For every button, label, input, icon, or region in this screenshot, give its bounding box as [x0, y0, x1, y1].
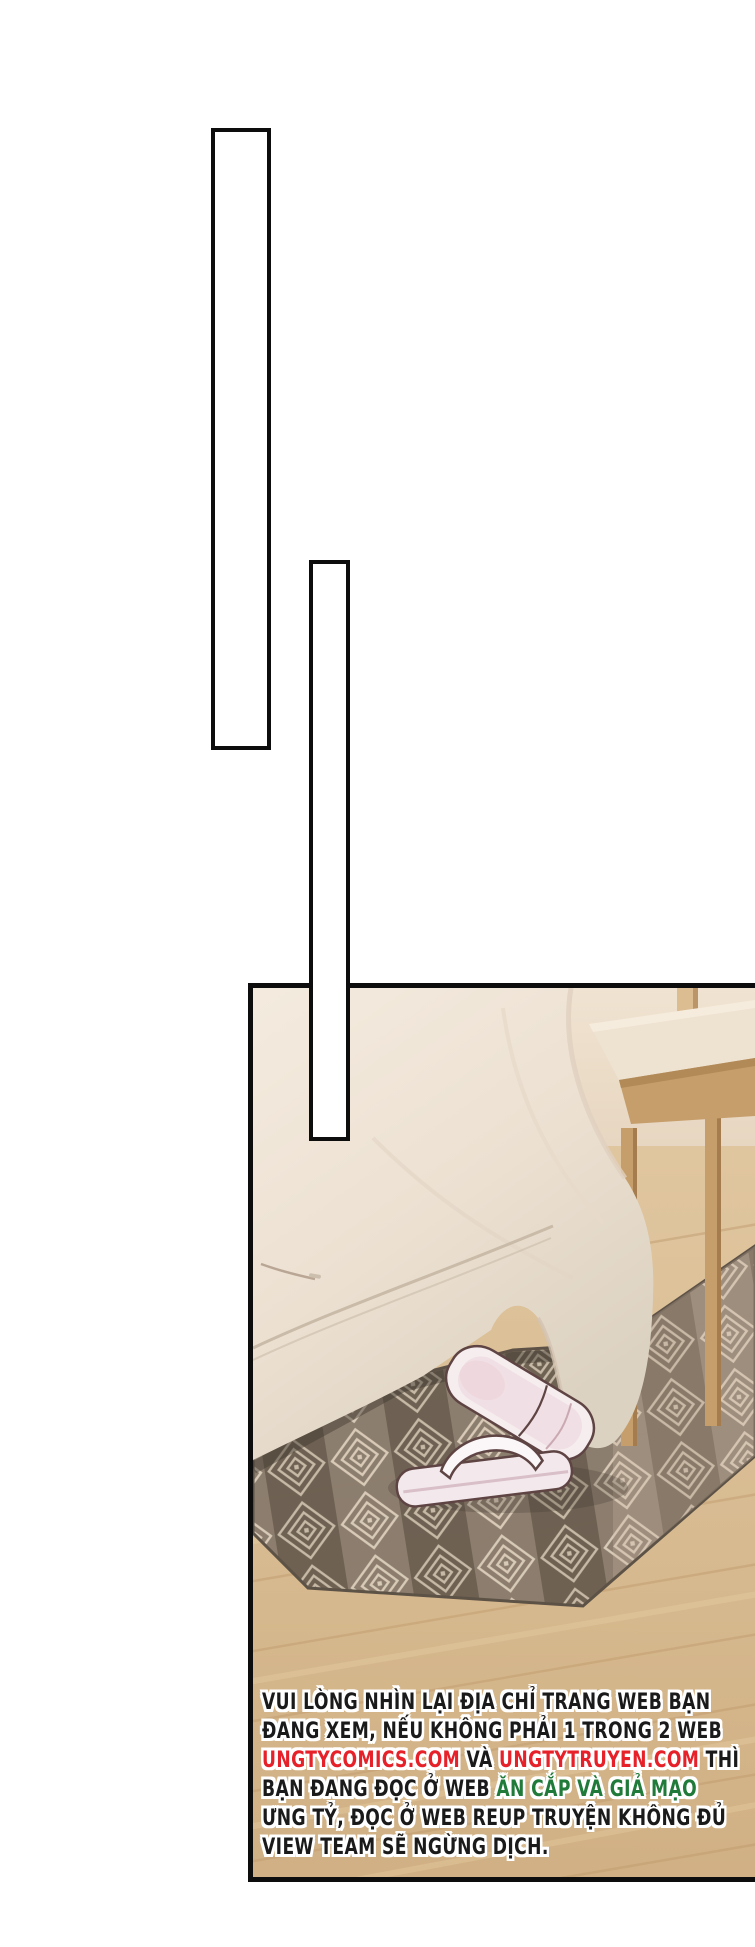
warning-text: VÀ — [460, 1748, 499, 1773]
piracy-warning: VUI LÒNG NHÌN LẠI ĐỊA CHỈ TRANG WEB BẠN … — [262, 1688, 755, 1862]
speech-bubble-tail-2 — [309, 560, 350, 1141]
warning-line-6: VIEW TEAM SẼ NGỪNG DỊCH. — [262, 1833, 739, 1862]
warning-text: ĐANG XEM, NẾU KHÔNG PHẢI 1 TRONG 2 WEB — [262, 1719, 722, 1744]
warning-line-2: ĐANG XEM, NẾU KHÔNG PHẢI 1 TRONG 2 WEB — [262, 1717, 739, 1746]
warning-text: ƯNG TỶ, ĐỌC Ở WEB REUP TRUYỆN KHÔNG ĐỦ — [262, 1806, 726, 1831]
speech-bubble-tail-1 — [211, 128, 271, 750]
warning-highlight: ĂN CẮP VÀ GIẢ MẠO — [496, 1777, 697, 1802]
official-site-link-2: UNGTYTRUYEN.COM — [499, 1748, 699, 1773]
comic-page: VUI LÒNG NHÌN LẠI ĐỊA CHỈ TRANG WEB BẠN … — [0, 0, 755, 1947]
warning-line-1: VUI LÒNG NHÌN LẠI ĐỊA CHỈ TRANG WEB BẠN — [262, 1688, 739, 1717]
warning-text: THÌ — [699, 1748, 739, 1773]
warning-line-4: BẠN ĐANG ĐỌC Ở WEB ĂN CẮP VÀ GIẢ MẠO — [262, 1775, 739, 1804]
warning-text: VUI LÒNG NHÌN LẠI ĐỊA CHỈ TRANG WEB BẠN — [262, 1690, 711, 1715]
official-site-link-1: UNGTYCOMICS.COM — [262, 1748, 460, 1773]
warning-text: BẠN ĐANG ĐỌC Ở WEB — [262, 1777, 496, 1802]
warning-line-3: UNGTYCOMICS.COM VÀ UNGTYTRUYEN.COM THÌ — [262, 1746, 739, 1775]
warning-text: VIEW TEAM SẼ NGỪNG DỊCH. — [262, 1835, 549, 1860]
warning-line-5: ƯNG TỶ, ĐỌC Ở WEB REUP TRUYỆN KHÔNG ĐỦ — [262, 1804, 739, 1833]
